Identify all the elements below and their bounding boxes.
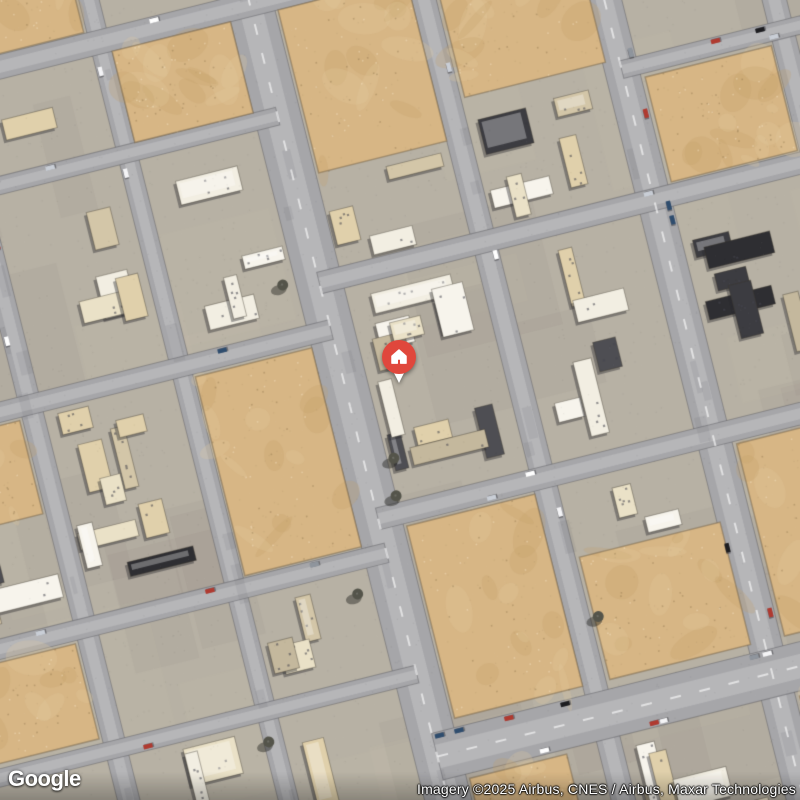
satellite-imagery[interactable] — [0, 0, 800, 800]
location-marker[interactable] — [381, 340, 417, 388]
marker-circle — [382, 340, 416, 374]
map-viewport: Google Imagery ©2025 Airbus, CNES / Airb… — [0, 0, 800, 800]
house-icon — [389, 347, 409, 367]
google-logo[interactable]: Google — [8, 766, 81, 792]
imagery-attribution: Imagery ©2025 Airbus, CNES / Airbus, Max… — [417, 781, 796, 797]
